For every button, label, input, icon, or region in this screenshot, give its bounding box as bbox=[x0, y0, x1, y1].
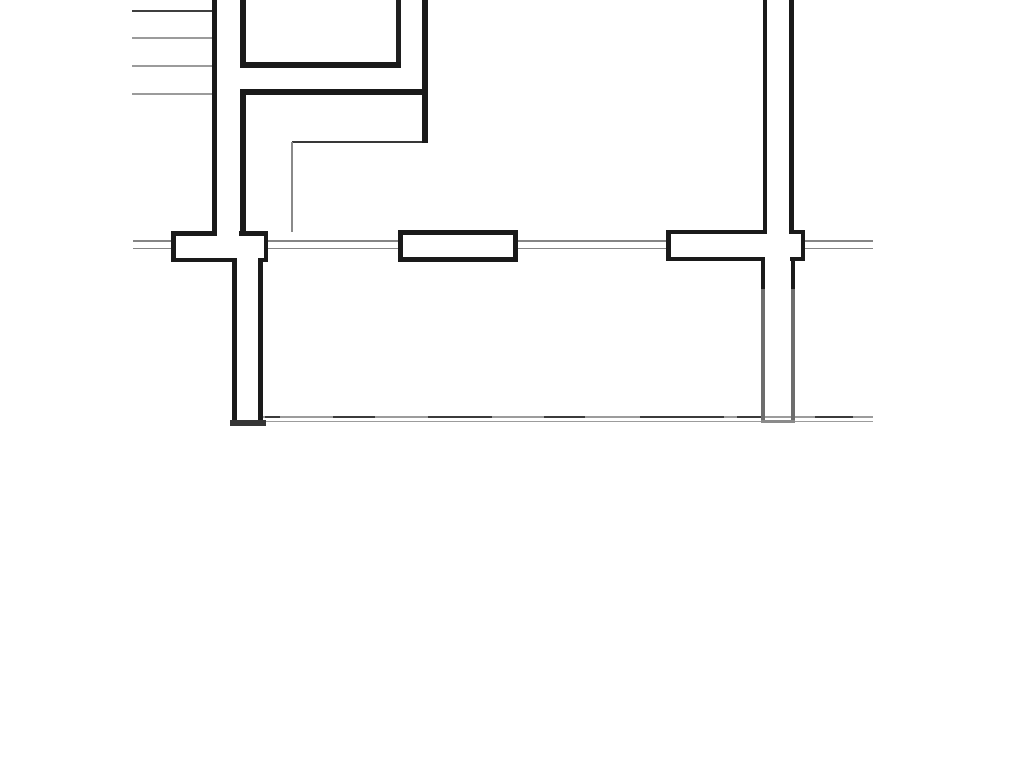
wall-lower-left-cap bbox=[230, 420, 266, 426]
window-frame-middle-edge-right bbox=[513, 230, 518, 263]
boundary-dash-7 bbox=[815, 416, 853, 419]
stair-tread-line-2 bbox=[132, 37, 213, 39]
window-frame-right-edge-left bbox=[666, 230, 671, 262]
stair-tread-line-4 bbox=[132, 93, 213, 95]
wall-lower-right-inner-dark bbox=[791, 257, 795, 289]
window-sill-lower-seg-2 bbox=[268, 248, 398, 250]
window-sill-upper-seg-4 bbox=[805, 240, 873, 242]
wall-top-right-outer bbox=[763, 0, 767, 233]
wall-lower-right-cap bbox=[761, 420, 795, 423]
wall-lower-left-outer bbox=[232, 258, 237, 423]
window-frame-right-top-seg-1 bbox=[666, 230, 767, 235]
stair-tread-line-1 bbox=[132, 10, 213, 12]
wall-stair-inner-upper bbox=[240, 0, 246, 68]
window-sill-upper-seg-1 bbox=[133, 240, 171, 242]
window-sill-lower-seg-1 bbox=[133, 248, 171, 250]
window-sill-upper-seg-2 bbox=[268, 240, 398, 242]
wall-lower-right-inner-faded bbox=[791, 289, 795, 421]
wall-top-right-inner bbox=[789, 0, 794, 233]
boundary-dash-2 bbox=[333, 416, 375, 419]
window-frame-left-edge-left bbox=[171, 231, 176, 262]
window-frame-left-bottom-seg-1 bbox=[171, 258, 237, 263]
wall-stair-outer bbox=[212, 0, 217, 235]
wall-lower-left-inner bbox=[258, 258, 263, 423]
stair-tread-line-3 bbox=[132, 65, 213, 67]
window-frame-left-top-seg-1 bbox=[171, 231, 217, 236]
window-frame-middle-bottom bbox=[398, 257, 518, 262]
floor-plan-canvas bbox=[0, 0, 1024, 768]
wall-stair-inner-lower bbox=[240, 89, 246, 235]
room-bottom-wall bbox=[240, 62, 401, 68]
window-sill-upper-seg-3 bbox=[518, 240, 666, 242]
window-sill-lower-seg-4 bbox=[805, 248, 873, 250]
window-frame-middle-edge-left bbox=[398, 230, 403, 263]
thin-wall-horizontal bbox=[292, 141, 422, 143]
partition-wall-vertical bbox=[422, 0, 428, 143]
wall-lower-right-outer-dark bbox=[761, 257, 765, 289]
window-frame-right-edge-right bbox=[801, 230, 806, 262]
boundary-dash-1 bbox=[265, 416, 280, 419]
room-right-wall bbox=[396, 0, 401, 62]
boundary-dash-3 bbox=[428, 416, 492, 419]
wall-lower-right-outer-faded bbox=[761, 289, 765, 421]
boundary-dash-6 bbox=[737, 416, 761, 419]
window-frame-middle-top bbox=[398, 230, 518, 235]
window-frame-left-edge-right bbox=[264, 231, 269, 262]
window-frame-right-bottom-seg-1 bbox=[666, 257, 765, 262]
window-sill-lower-seg-3 bbox=[518, 248, 666, 250]
boundary-dash-5 bbox=[640, 416, 724, 419]
boundary-dash-4 bbox=[544, 416, 585, 419]
thin-wall-vertical bbox=[291, 142, 293, 232]
partition-wall-horizontal bbox=[240, 89, 428, 95]
